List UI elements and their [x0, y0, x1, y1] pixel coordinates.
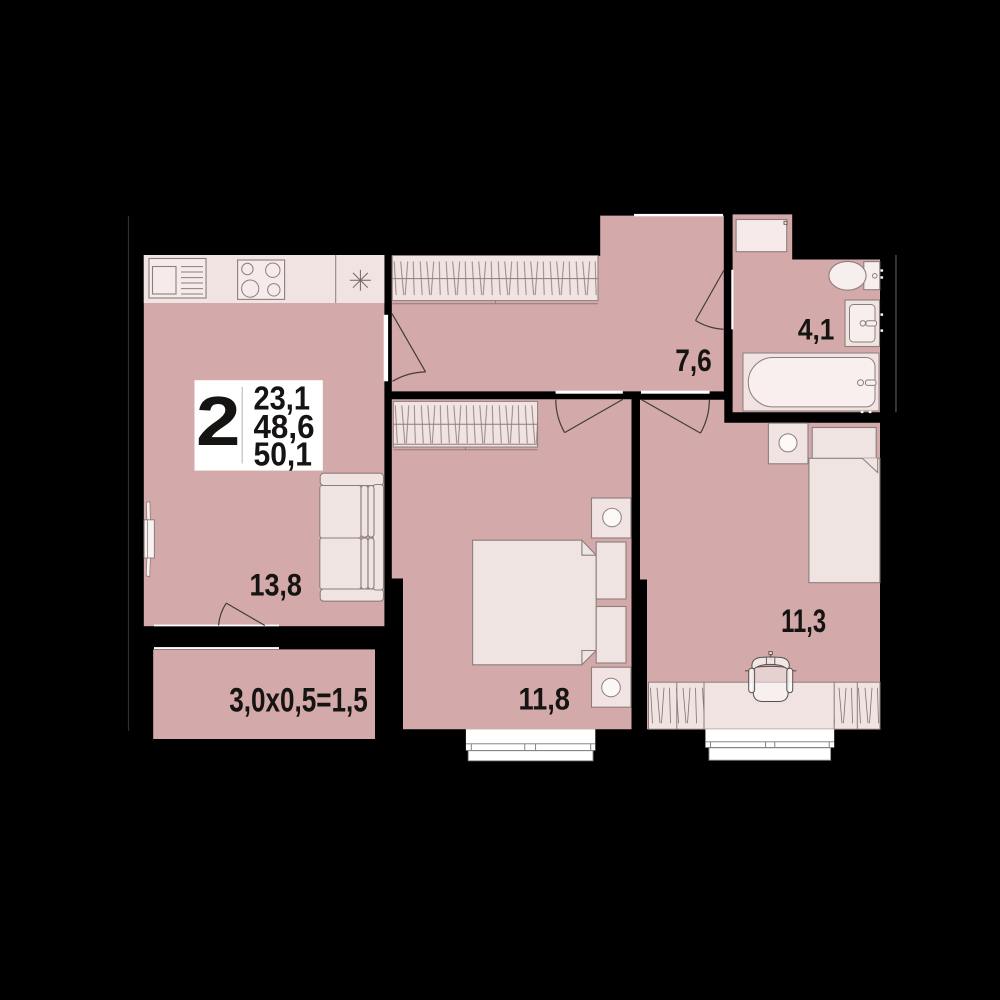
- svg-text:11,8: 11,8: [518, 681, 570, 716]
- svg-text:4,1: 4,1: [798, 313, 835, 346]
- svg-text:13,8: 13,8: [249, 568, 302, 603]
- svg-text:7,6: 7,6: [675, 343, 712, 378]
- svg-text:2: 2: [196, 382, 240, 460]
- svg-text:3,0x0,5=1,5: 3,0x0,5=1,5: [229, 682, 368, 720]
- svg-text:50,1: 50,1: [254, 435, 313, 472]
- svg-text:11,3: 11,3: [781, 603, 826, 639]
